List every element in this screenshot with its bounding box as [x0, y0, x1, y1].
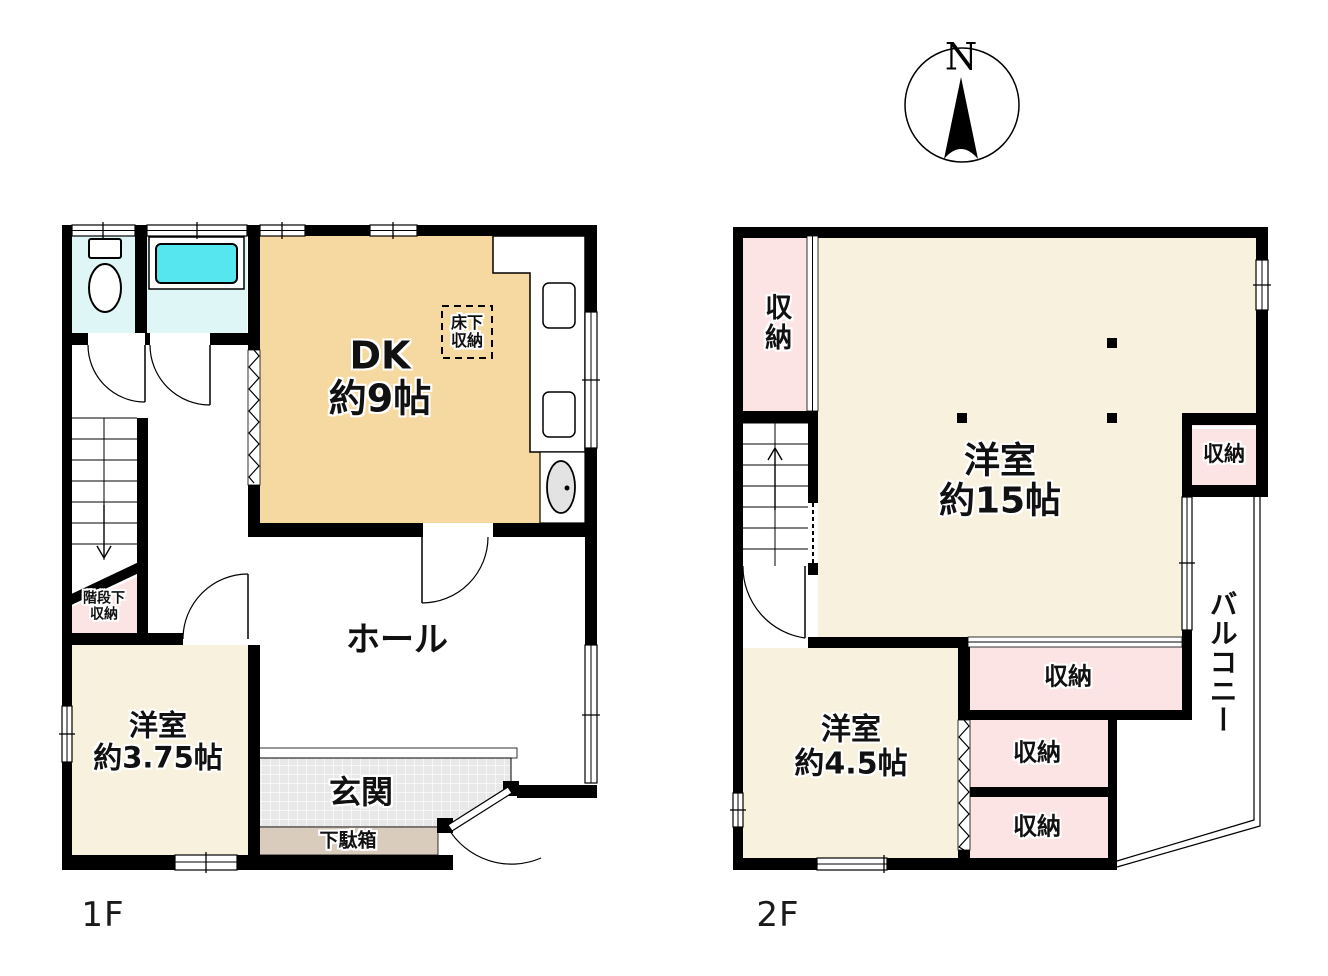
stairs-2f — [743, 423, 808, 566]
floor2-tag: 2F — [756, 895, 799, 935]
doors-2f[interactable] — [743, 566, 805, 638]
floorplan-drawing — [0, 0, 1328, 976]
floor2-plan — [730, 227, 1271, 873]
stairs-1f — [72, 418, 137, 560]
floor1-tag: 1F — [81, 895, 124, 935]
compass-north-label: N — [945, 36, 977, 79]
floor1-plan — [59, 222, 600, 873]
floorplan-canvas: N DK 約9帖 床下 収納 ホール 玄関 下駄箱 階段下 収納 洋室 約3.7… — [0, 0, 1328, 976]
